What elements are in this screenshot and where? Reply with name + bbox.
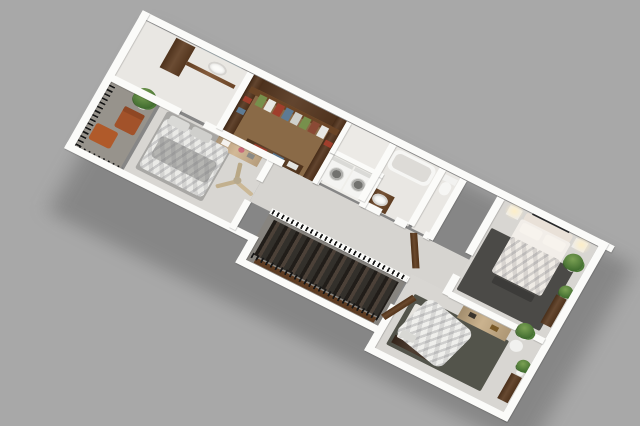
floorplan-3d	[36, 8, 622, 426]
scene-background	[0, 0, 640, 426]
